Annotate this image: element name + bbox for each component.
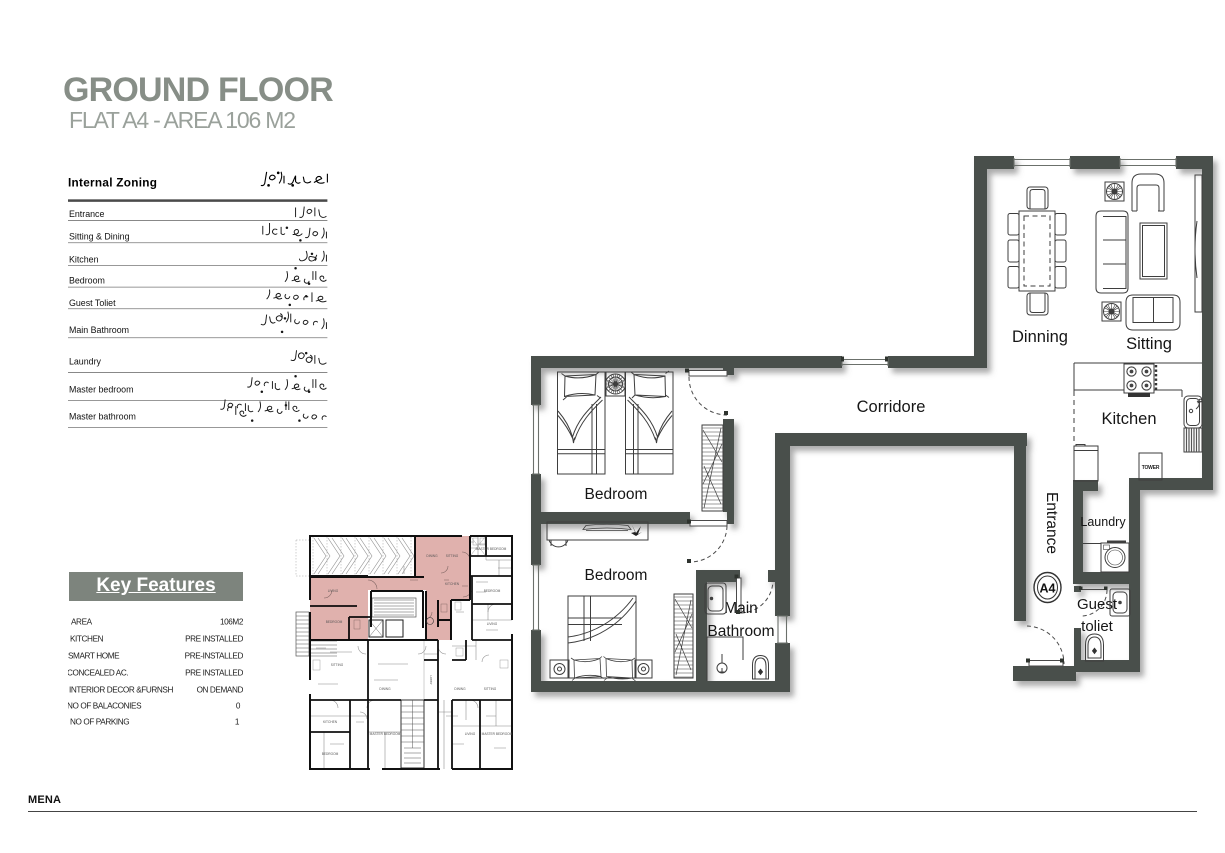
svg-text:Corridore: Corridore: [857, 398, 926, 416]
svg-text:Kitchen: Kitchen: [1101, 410, 1156, 428]
svg-text:Dinning: Dinning: [1012, 328, 1068, 346]
svg-text:Main: Main: [724, 600, 758, 617]
svg-text:Sitting: Sitting: [1126, 335, 1172, 353]
svg-text:Guest: Guest: [1077, 596, 1118, 613]
svg-text:Entrance: Entrance: [1043, 492, 1060, 554]
svg-text:Bedroom: Bedroom: [585, 567, 648, 584]
svg-text:A4: A4: [1040, 582, 1056, 596]
svg-text:Bedroom: Bedroom: [585, 486, 648, 503]
svg-text:TOWER: TOWER: [1142, 465, 1160, 471]
svg-text:toliet: toliet: [1081, 618, 1114, 635]
svg-text:Laundry: Laundry: [1080, 515, 1126, 529]
